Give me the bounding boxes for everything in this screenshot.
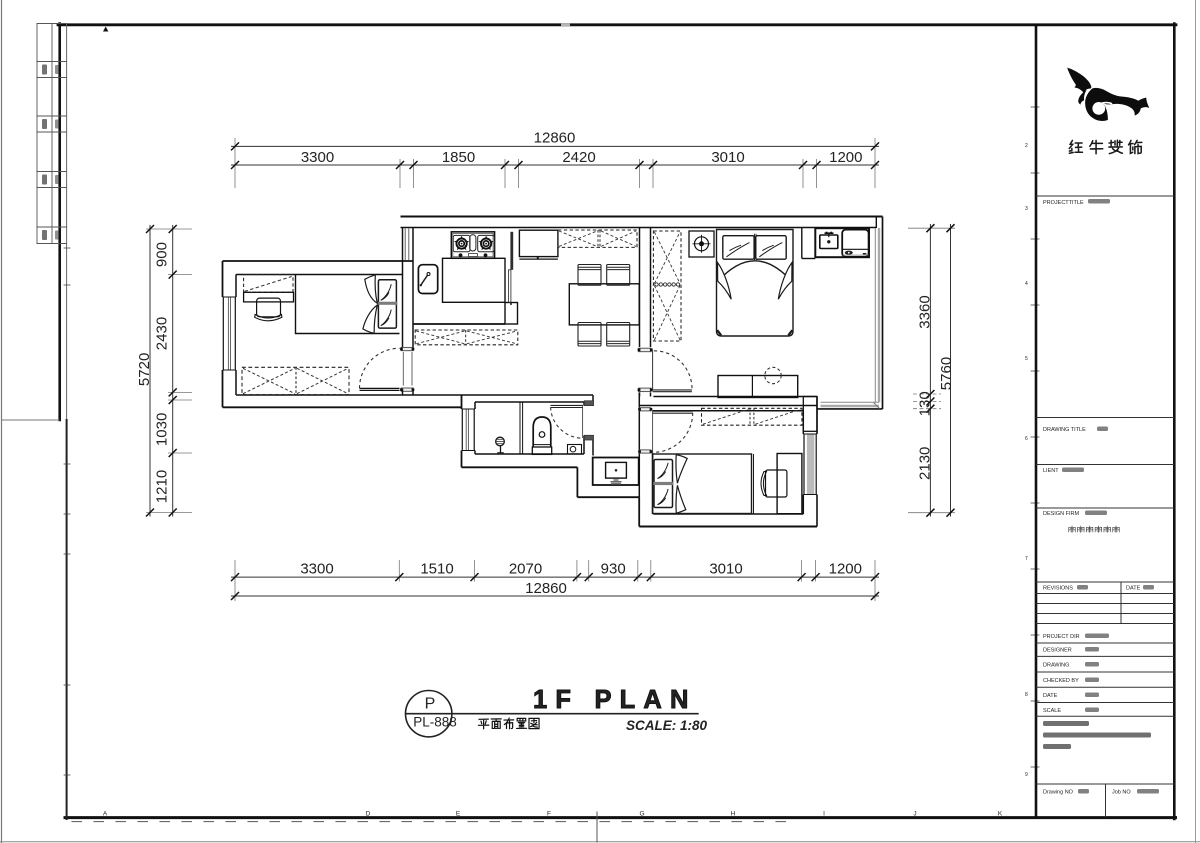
svg-text:2130: 2130 <box>917 447 934 480</box>
svg-text:930: 930 <box>601 561 626 578</box>
svg-text:7: 7 <box>1025 556 1028 562</box>
svg-text:1200: 1200 <box>829 149 862 166</box>
svg-text:D: D <box>366 811 371 818</box>
svg-text:Job NO: Job NO <box>1112 790 1131 796</box>
svg-text:8: 8 <box>1025 692 1028 698</box>
svg-text:3: 3 <box>1025 206 1028 212</box>
svg-text:REVISIONS: REVISIONS <box>1043 586 1073 592</box>
svg-text:1850: 1850 <box>442 149 475 166</box>
svg-text:5720: 5720 <box>136 353 153 386</box>
svg-text:5760: 5760 <box>938 357 955 390</box>
svg-text:3300: 3300 <box>301 149 334 166</box>
svg-text:3010: 3010 <box>709 561 742 578</box>
svg-text:2430: 2430 <box>154 317 171 350</box>
svg-text:PL-888: PL-888 <box>413 715 457 730</box>
svg-text:3300: 3300 <box>300 561 333 578</box>
svg-text:12860: 12860 <box>525 580 567 597</box>
svg-text:PROJECTTITLE: PROJECTTITLE <box>1043 200 1084 206</box>
svg-text:H: H <box>731 811 736 818</box>
svg-text:DESIGN FIRM: DESIGN FIRM <box>1043 511 1079 517</box>
svg-text:DATE: DATE <box>1043 693 1058 699</box>
svg-text:DATE: DATE <box>1126 586 1141 592</box>
svg-text:SCALE: SCALE <box>1043 708 1061 714</box>
svg-text:F: F <box>547 811 551 818</box>
svg-text:1030: 1030 <box>154 413 171 446</box>
svg-text:2070: 2070 <box>509 561 542 578</box>
svg-text:12860: 12860 <box>534 130 576 147</box>
svg-text:9: 9 <box>1025 772 1028 778</box>
svg-text:DRAWING TITLE: DRAWING TITLE <box>1043 427 1086 433</box>
svg-text:K: K <box>998 811 1003 818</box>
svg-text:CHECKED BY: CHECKED BY <box>1043 678 1079 684</box>
svg-text:Drawing NO: Drawing NO <box>1043 790 1074 796</box>
svg-text:1200: 1200 <box>829 561 862 578</box>
svg-text:2: 2 <box>1025 143 1028 149</box>
svg-text:5: 5 <box>1025 356 1028 362</box>
svg-text:1F PLAN: 1F PLAN <box>533 686 697 714</box>
svg-text:LIENT: LIENT <box>1043 468 1059 474</box>
svg-text:J: J <box>913 811 916 818</box>
svg-text:E: E <box>456 811 461 818</box>
svg-text:DRAWING: DRAWING <box>1043 663 1069 669</box>
svg-text:130: 130 <box>917 391 934 416</box>
svg-text:G: G <box>639 811 644 818</box>
svg-text:3360: 3360 <box>917 295 934 328</box>
svg-text:2420: 2420 <box>562 149 595 166</box>
svg-text:6: 6 <box>1025 436 1028 442</box>
svg-text:1210: 1210 <box>154 470 171 503</box>
svg-text:1510: 1510 <box>420 561 453 578</box>
svg-text:3010: 3010 <box>711 149 744 166</box>
svg-text:900: 900 <box>154 242 171 267</box>
svg-text:DESIGNER: DESIGNER <box>1043 648 1072 654</box>
svg-text:I: I <box>823 811 825 818</box>
svg-text:A: A <box>103 811 108 818</box>
svg-text:SCALE: 1:80: SCALE: 1:80 <box>626 718 708 733</box>
svg-text:P: P <box>425 696 436 713</box>
svg-text:PROJECT DIR: PROJECT DIR <box>1043 634 1080 640</box>
svg-text:4: 4 <box>1025 281 1028 287</box>
